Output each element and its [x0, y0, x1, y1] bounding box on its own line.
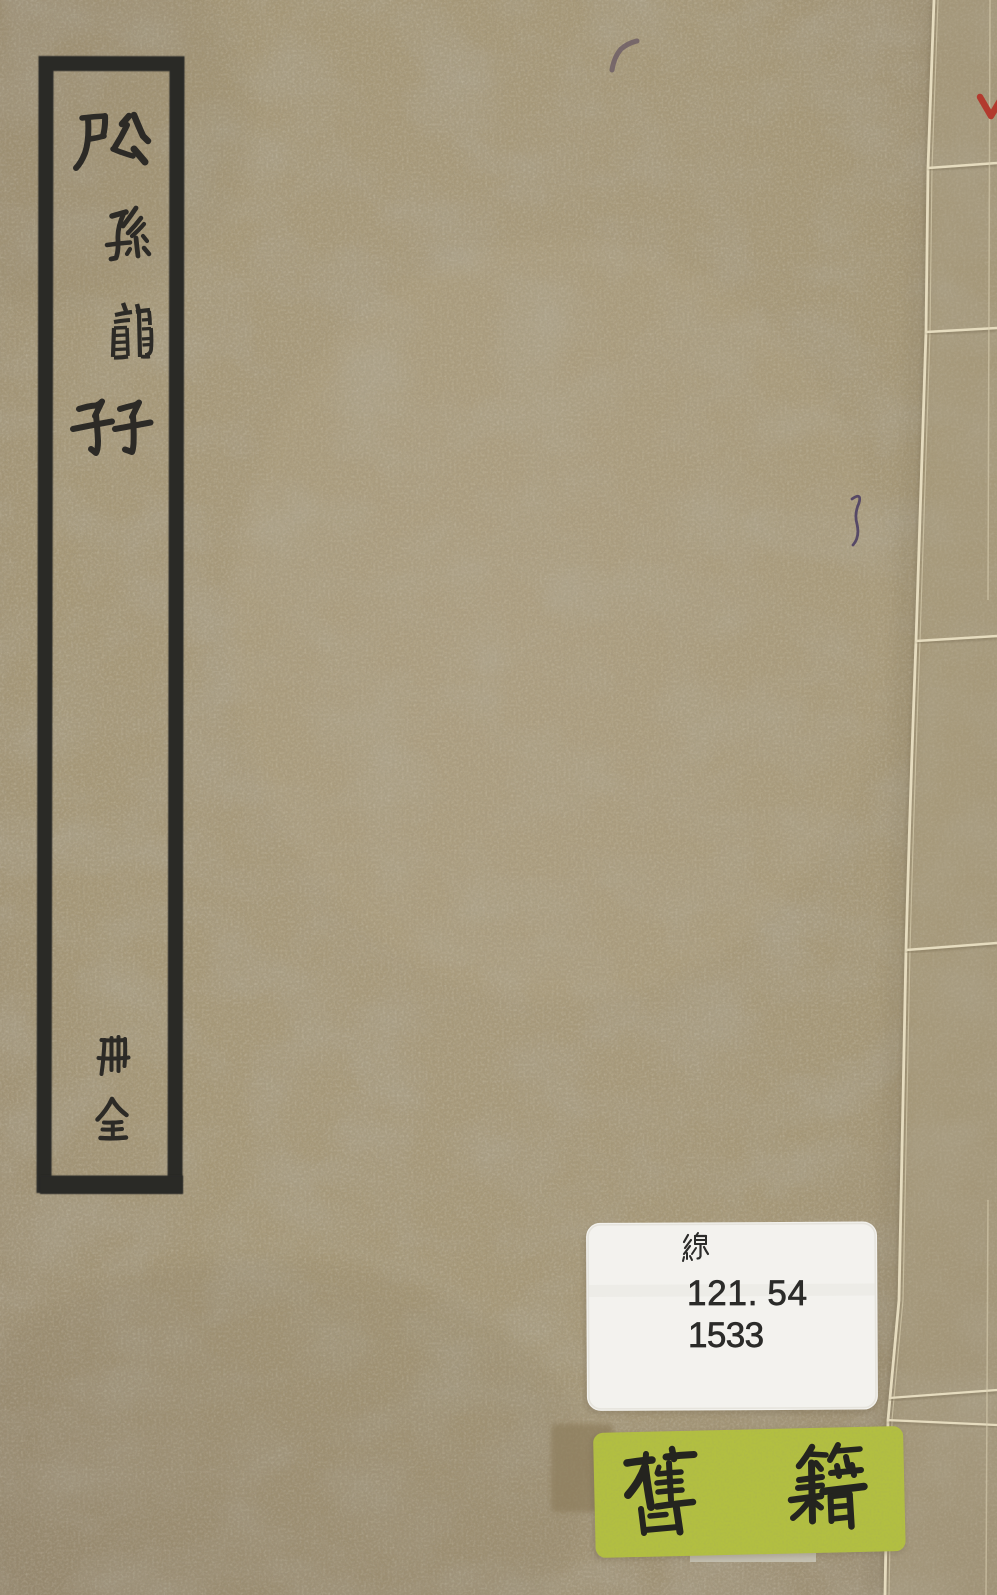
svg-text:121.54: 121.54 [687, 1274, 808, 1313]
svg-text:1533: 1533 [688, 1316, 763, 1355]
